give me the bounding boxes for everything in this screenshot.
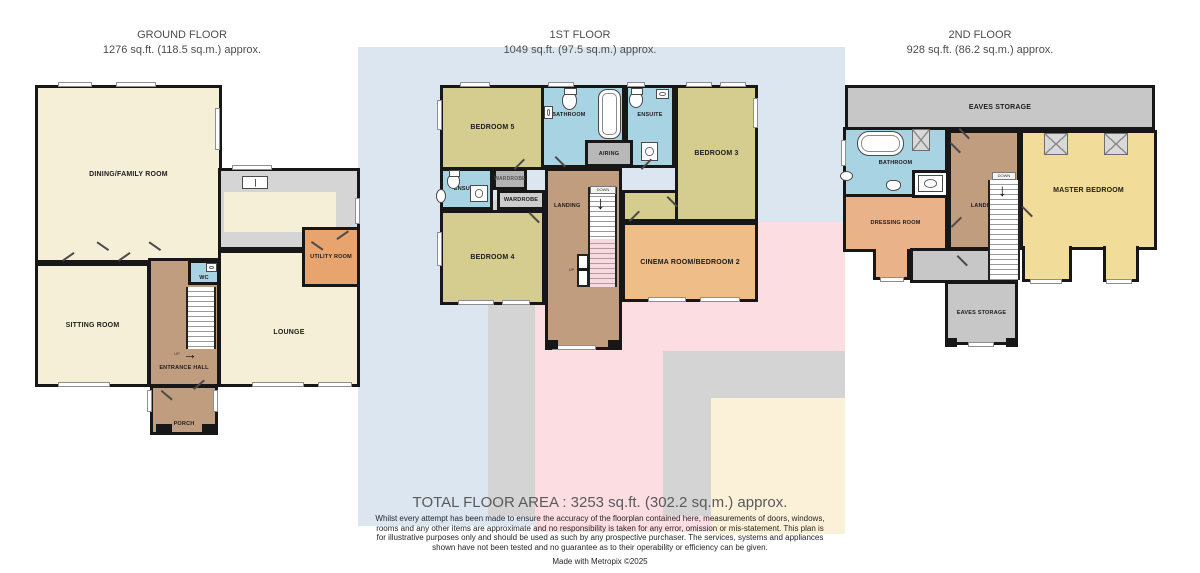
- room-master-bedroom: MASTER BEDROOM: [1020, 130, 1157, 250]
- dressing-lower-tab: [873, 249, 910, 280]
- freestanding-bath-icon: [857, 131, 904, 156]
- room-label: DRESSING ROOM: [871, 220, 921, 226]
- first-floor-title: 1ST FLOOR 1049 sq.ft. (97.5 sq.m.) appro…: [420, 28, 740, 58]
- sink-icon: [918, 175, 943, 192]
- window: [1106, 279, 1132, 284]
- skylight-icon: [1104, 133, 1128, 155]
- ground-floor-name: GROUND FLOOR: [22, 28, 342, 43]
- second-floor-area: 928 sq.ft. (86.2 sq.m.) approx.: [820, 43, 1140, 58]
- skylight-icon: [912, 129, 930, 151]
- floorplan-page: GROUND FLOOR 1276 sq.ft. (118.5 sq.m.) a…: [0, 0, 1200, 573]
- second-floor-name: 2ND FLOOR: [820, 28, 1140, 43]
- disclaimer-text: Whilst every attempt has been made to en…: [372, 514, 828, 552]
- wall-pier: [1006, 338, 1018, 347]
- room-eaves-storage-bottom: EAVES STORAGE: [945, 281, 1018, 345]
- room-eaves-storage-top: EAVES STORAGE: [845, 85, 1155, 130]
- first-floor-name: 1ST FLOOR: [420, 28, 740, 43]
- basin-icon: [840, 171, 853, 181]
- window: [880, 277, 904, 282]
- room-label: EAVES STORAGE: [957, 310, 1006, 316]
- skylight-icon: [1044, 133, 1068, 155]
- wall-pier: [945, 338, 957, 347]
- window: [1030, 279, 1062, 284]
- ground-floor-title: GROUND FLOOR 1276 sq.ft. (118.5 sq.m.) a…: [22, 28, 342, 58]
- pedestal-sink-icon: [886, 180, 901, 191]
- window: [841, 140, 846, 166]
- master-dormer-left: [1022, 246, 1072, 282]
- stairs-down-label: DOWN: [992, 172, 1016, 180]
- room-label: EAVES STORAGE: [969, 104, 1031, 111]
- credit-text: Made with Metropix ©2025: [372, 557, 828, 566]
- master-dormer-right: [1103, 246, 1139, 282]
- room-dressing: DRESSING ROOM: [843, 194, 948, 252]
- stairs-down-arrow-icon: ↓: [998, 182, 1007, 199]
- total-floor-area: TOTAL FLOOR AREA : 3253 sq.ft. (302.2 sq…: [0, 494, 1200, 511]
- room-label: MASTER BEDROOM: [1053, 187, 1124, 194]
- floor-plan-second: EAVES STORAGE BATHROOM DRESSING ROOM LAN…: [0, 0, 1200, 573]
- second-floor-title: 2ND FLOOR 928 sq.ft. (86.2 sq.m.) approx…: [820, 28, 1140, 58]
- first-floor-area: 1049 sq.ft. (97.5 sq.m.) approx.: [420, 43, 740, 58]
- room-label: BATHROOM: [879, 160, 913, 166]
- ground-floor-area: 1276 sq.ft. (118.5 sq.m.) approx.: [22, 43, 342, 58]
- window: [968, 342, 994, 347]
